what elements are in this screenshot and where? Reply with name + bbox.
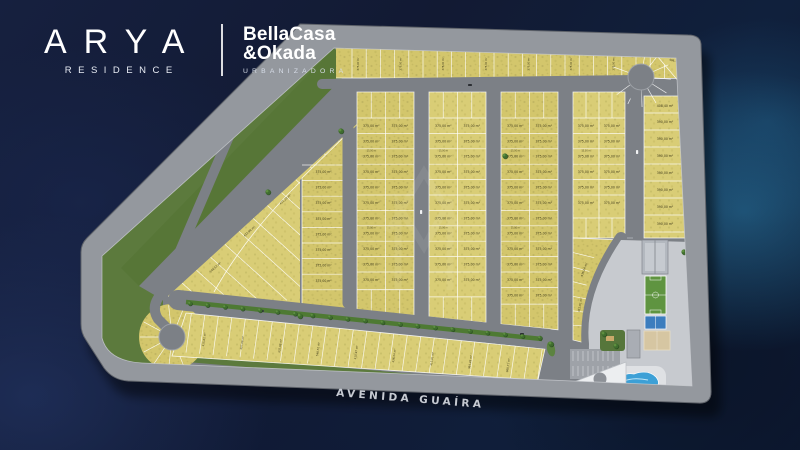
logo-divider [221,24,223,76]
lot-area-label: 375,00 m² [535,247,552,251]
lot-area-label: 375,00 m² [363,216,380,220]
lot-area-label: 375,00 m² [315,170,332,174]
developer-logo: BellaCasa &Okada URBANIZADORA [243,25,347,76]
lot-area-label: 375,00 m² [315,217,332,221]
lot-area-label: 375,00 m² [391,124,408,128]
lot-area-label: 375,00 m² [435,170,452,174]
lot-area-label: 375,00 m² [612,58,616,71]
lot-area-label: 375,00 m² [315,232,332,236]
lot-area-label: 375,00 m² [507,263,524,267]
lot-area-label: 375,00 m² [356,58,360,71]
lot-area-label: 375,00 m² [507,293,524,297]
lot-area-label: 375,00 m² [484,58,488,71]
lot-area-label: 375,00 m² [463,247,480,251]
lot-area-label: 375,00 m² [315,201,332,205]
svg-text:15,00 m: 15,00 m [511,150,520,153]
lot-area-label: 375,00 m² [399,58,403,71]
lot-area-label: 375,00 m² [315,186,332,190]
lot-area-label: 375,00 m² [507,124,524,128]
lot-area-label: 375,00 m² [535,216,552,220]
lot-area-label: 375,00 m² [535,139,552,143]
lot-area-label: 390,00 m² [657,154,674,158]
lot-area-label: 375,00 m² [435,155,452,159]
lot-area-label: 375,00 m² [463,201,480,205]
brand-name: ARYA [38,25,201,59]
lot-area-label: 375,00 m² [391,139,408,143]
lot-area-label: 375,00 m² [363,232,380,236]
lot-area-label: 375,00 m² [507,201,524,205]
lot-area-label: 375,00 m² [507,232,524,236]
lot-area-label: 375,00 m² [578,124,595,128]
lot-area-label: 410,97 m² [226,75,239,87]
lot-area-label: 375,00 m² [604,155,621,159]
lot-area-label: 375,00 m² [463,232,480,236]
lot-area-label: 375,00 m² [363,139,380,143]
lot-area-label: 375,00 m² [315,264,332,268]
lot-area-label: 375,00 m² [463,124,480,128]
lot-area-label: 415,02 m² [168,127,181,139]
lot-area-label: 375,00 m² [578,139,595,143]
svg-text:15,00 m: 15,00 m [439,227,448,230]
lot-area-label: 375,00 m² [363,170,380,174]
lot-area-label: 375,00 m² [363,278,380,282]
lot-area-label: 375,00 m² [604,124,621,128]
lot-area-label: 375,00 m² [463,186,480,190]
page-background: 368,71 m²407,06 m²410,97 m²364,26 m²415,… [0,0,800,450]
lot-area-label: 375,00 m² [535,293,552,297]
lot-area-label: 375,00 m² [578,201,595,205]
lot-area-label: 375,00 m² [604,139,621,143]
lot-area-label: 375,00 m² [507,278,524,282]
lot-area-label: 375,00 m² [441,58,445,71]
lot-area-label: 390,00 m² [657,222,674,226]
lot-area-label: 412,01 m² [110,179,123,191]
lot-area-label: 375,00 m² [363,263,380,267]
lot-area-label: 390,00 m² [657,171,674,175]
header-logos: ARYA RESIDENCE BellaCasa &Okada URBANIZA… [38,24,347,76]
lot-area-label: 375,00 m² [363,155,380,159]
lot-area-label: 375,00 m² [315,248,332,252]
lot-area-label: 375,00 m² [463,139,480,143]
lot-area-label: 375,00 m² [535,201,552,205]
lot-area-label: 375,00 m² [363,186,380,190]
lot-area-label: 375,00 m² [604,186,621,190]
lot-area-label: 375,00 m² [507,170,524,174]
lot-area-label: 390,00 m² [657,205,674,209]
lot-area-label: 390,00 m² [657,137,674,141]
lot-area-label: 375,00 m² [578,155,595,159]
lot-area-label: 375,00 m² [578,186,595,190]
developer-name-line2: &Okada [243,44,347,63]
svg-text:15,00 m: 15,00 m [367,227,376,230]
lot-area-label: 375,00 m² [463,278,480,282]
lot-area-label: 375,00 m² [363,247,380,251]
lot-area-label: 375,00 m² [578,170,595,174]
lot-area-label: 375,00 m² [463,155,480,159]
lot-area-label: 364,26 m² [197,101,210,113]
lot-area-label: 375,00 m² [535,232,552,236]
lot-area-label: 375,00 m² [391,186,408,190]
developer-name-line1: BellaCasa [243,25,347,44]
lot-area-label: 375,00 m² [363,201,380,205]
svg-text:15,00 m: 15,00 m [439,150,448,153]
service-building [627,330,640,358]
brand-subtitle: RESIDENCE [61,65,179,76]
lot-area-label: 548,52 m² [139,153,152,165]
sports-court [645,316,666,329]
lot-area-label: 408,40 m² [657,104,674,108]
lot-area-label: 375,00 m² [535,186,552,190]
lot-area-label: 375,00 m² [435,124,452,128]
lot-area-label: 390,00 m² [657,120,674,124]
lot-area-label: 375,00 m² [507,139,524,143]
lot-area-label: 375,00 m² [507,186,524,190]
lot-area-label: 375,00 m² [526,58,530,71]
clubhouse-building [642,240,668,274]
lot-area-label: 375,00 m² [604,170,621,174]
lot-area-label: 375,00 m² [391,170,408,174]
svg-text:15,00 m: 15,00 m [581,150,590,153]
lot-area-label: 375,00 m² [535,170,552,174]
lot-area-label: 375,00 m² [435,139,452,143]
lot-area-label: 375,00 m² [507,247,524,251]
lot-area-label: 375,00 m² [535,278,552,282]
lot-area-label: 390,00 m² [657,188,674,192]
lot-area-label: 375,00 m² [569,58,573,71]
lot-area-label: 375,00 m² [604,201,621,205]
lot-area-label: 375,00 m² [507,216,524,220]
lot-area-label: 375,00 m² [463,170,480,174]
lot-area-label: 375,00 m² [463,216,480,220]
lot-area-label: 375,00 m² [535,155,552,159]
lot-area-label: 375,00 m² [463,263,480,267]
lot-area-label: 375,00 m² [507,155,524,159]
lot-area-label: 375,00 m² [363,124,380,128]
lot-area-label: 375,00 m² [391,155,408,159]
lot-area-label: 375,00 m² [535,263,552,267]
svg-text:15,00 m: 15,00 m [367,150,376,153]
lot-area-label: 375,00 m² [315,279,332,283]
arya-logo: ARYA RESIDENCE [38,25,201,76]
svg-text:15,00 m: 15,00 m [511,227,520,230]
soccer-field [645,276,666,314]
lot-area-label: 375,00 m² [535,124,552,128]
developer-subtitle: URBANIZADORA [243,68,347,75]
